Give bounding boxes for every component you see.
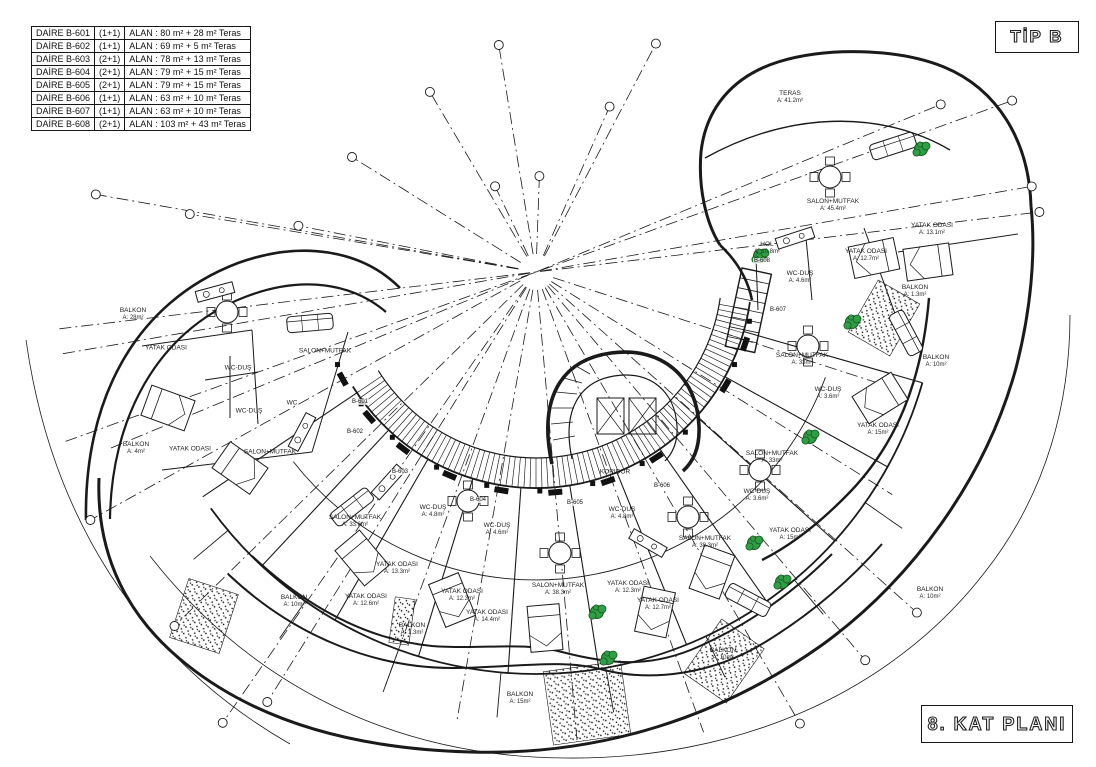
stair-core [548, 352, 699, 471]
plant-icon [589, 605, 606, 619]
floor-plan-title: 8. KAT PLANI [928, 714, 1067, 734]
bed-symbol [429, 573, 476, 628]
tip-b-label-box: TİP B [995, 21, 1079, 53]
tip-b-label: TİP B [1010, 27, 1063, 46]
floorplan-canvas: DAİRE B-601(1+1)ALAN : 80 m² + 28 m² Ter… [0, 0, 1096, 767]
floor-plan-title-box: 8. KAT PLANI [921, 705, 1073, 743]
sofa-symbol [329, 487, 375, 528]
kitchen-counter-symbol [775, 227, 815, 249]
sofa-symbol [869, 131, 918, 160]
table-row: DAİRE B-603(2+1)ALAN : 78 m² + 13 m² Ter… [32, 53, 251, 66]
bed-symbol [635, 586, 676, 638]
bed-symbol [848, 238, 900, 279]
table-row: DAİRE B-605(2+1)ALAN : 79 m² + 15 m² Ter… [32, 79, 251, 92]
kitchen-counter-symbol [195, 282, 235, 302]
table-symbol [448, 481, 488, 521]
plant-icon [802, 430, 819, 444]
plant-icon [752, 249, 769, 263]
table-row: DAİRE B-604(2+1)ALAN : 79 m² + 15 m² Ter… [32, 66, 251, 79]
table-row: DAİRE B-601(1+1)ALAN : 80 m² + 28 m² Ter… [32, 27, 251, 40]
bed-symbol [527, 604, 563, 653]
bed-symbol [212, 442, 268, 495]
kitchen-counter-symbol [288, 413, 316, 452]
plant-icon [774, 575, 791, 589]
apartment-table: DAİRE B-601(1+1)ALAN : 80 m² + 28 m² Ter… [31, 26, 251, 131]
kitchen-counter-symbol [371, 464, 405, 500]
table-symbol [810, 157, 850, 197]
sofa-symbol [286, 313, 333, 333]
table-row: DAİRE B-602(1+1)ALAN : 69 m² + 5 m² Tera… [32, 40, 251, 53]
table-row: DAİRE B-608(2+1)ALAN : 103 m² + 43 m² Te… [32, 118, 251, 131]
table-symbol [540, 533, 580, 573]
plant-icon [746, 536, 763, 550]
bed-symbol [141, 385, 195, 431]
bed-symbol [852, 372, 908, 424]
table-row: DAİRE B-606(1+1)ALAN : 63 m² + 10 m² Ter… [32, 92, 251, 105]
table-row: DAİRE B-607(1+1)ALAN : 63 m² + 10 m² Ter… [32, 105, 251, 118]
bed-symbol [903, 243, 953, 281]
